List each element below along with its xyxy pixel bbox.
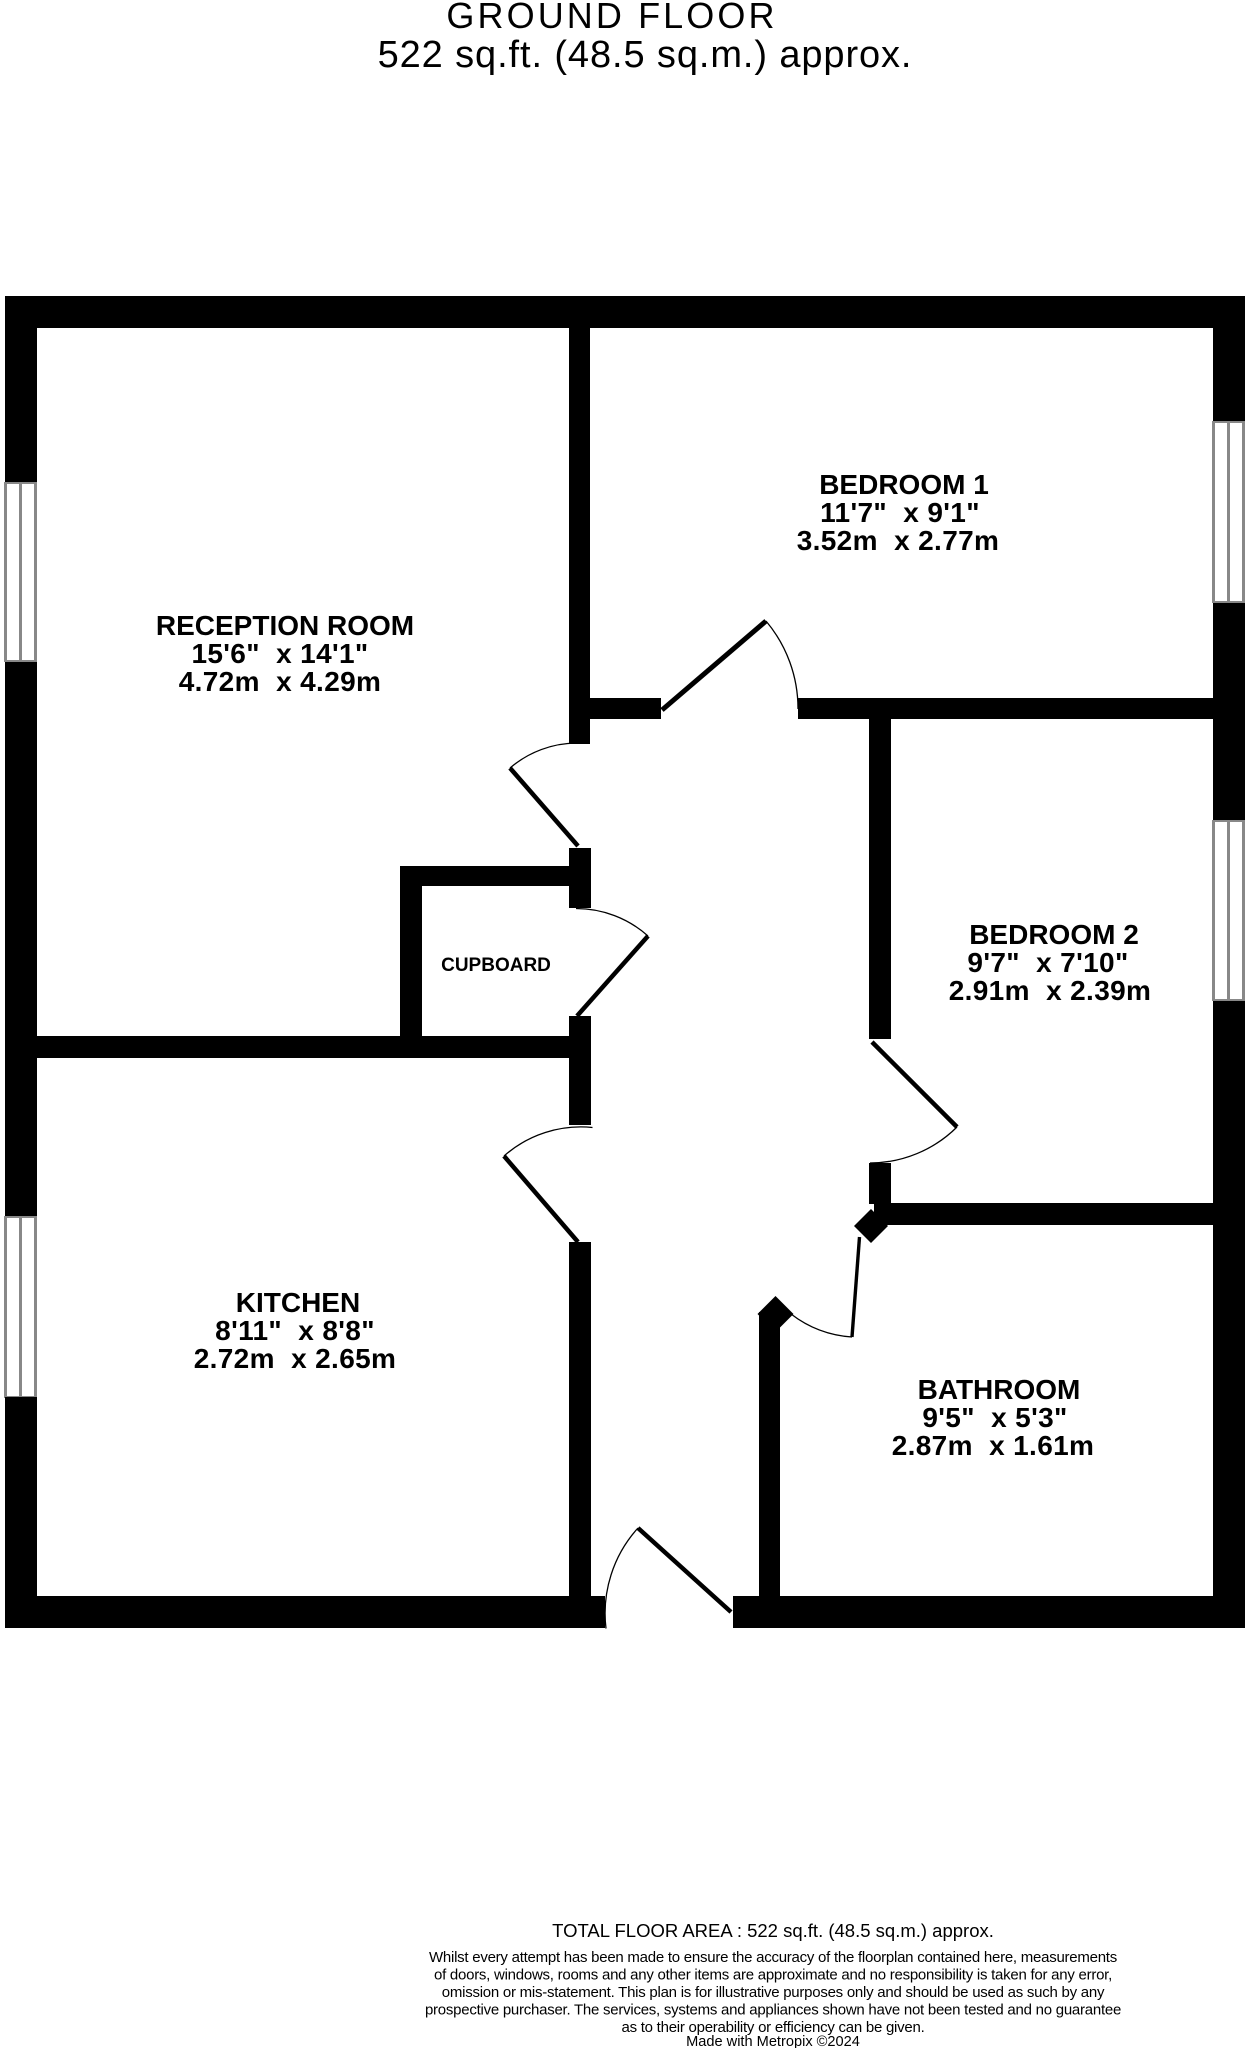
svg-text:prospective purchaser. The ser: prospective purchaser. The services, sys… [425,2002,1121,2019]
svg-text:GROUND FLOOR: GROUND FLOOR [446,0,777,36]
svg-text:2.91m x 2.39m: 2.91m x 2.39m [949,975,1152,1006]
svg-text:Whilst every attempt has been: Whilst every attempt has been made to en… [429,1949,1117,1966]
svg-text:BEDROOM 1: BEDROOM 1 [819,469,989,500]
svg-text:2.87m x 1.61m: 2.87m x 1.61m [892,1430,1095,1461]
svg-text:4.72m x 4.29m: 4.72m x 4.29m [179,666,382,697]
svg-text:KITCHEN: KITCHEN [236,1287,360,1318]
svg-text:9'7" x 7'10": 9'7" x 7'10" [967,947,1128,978]
svg-text:RECEPTION ROOM: RECEPTION ROOM [156,610,414,641]
svg-text:8'11" x 8'8": 8'11" x 8'8" [215,1315,375,1346]
svg-text:omission or mis-statement. Thi: omission or mis-statement. This plan is … [442,1984,1105,2001]
svg-text:3.52m x 2.77m: 3.52m x 2.77m [797,525,1000,556]
svg-text:2.72m x 2.65m: 2.72m x 2.65m [194,1343,397,1374]
svg-text:BEDROOM 2: BEDROOM 2 [969,919,1139,950]
svg-text:of doors, windows, rooms and a: of doors, windows, rooms and any other i… [434,1967,1112,1984]
svg-text:11'7" x 9'1": 11'7" x 9'1" [820,497,980,528]
svg-text:CUPBOARD: CUPBOARD [441,955,551,976]
svg-text:Made with Metropix ©2024: Made with Metropix ©2024 [686,2034,860,2048]
svg-text:15'6" x 14'1": 15'6" x 14'1" [191,638,368,669]
svg-text:TOTAL FLOOR AREA : 522 sq.ft.: TOTAL FLOOR AREA : 522 sq.ft. (48.5 sq.m… [552,1920,994,1941]
svg-text:522 sq.ft. (48.5 sq.m.) approx: 522 sq.ft. (48.5 sq.m.) approx. [378,34,913,76]
svg-text:9'5" x 5'3": 9'5" x 5'3" [922,1402,1067,1433]
svg-text:BATHROOM: BATHROOM [918,1374,1081,1405]
